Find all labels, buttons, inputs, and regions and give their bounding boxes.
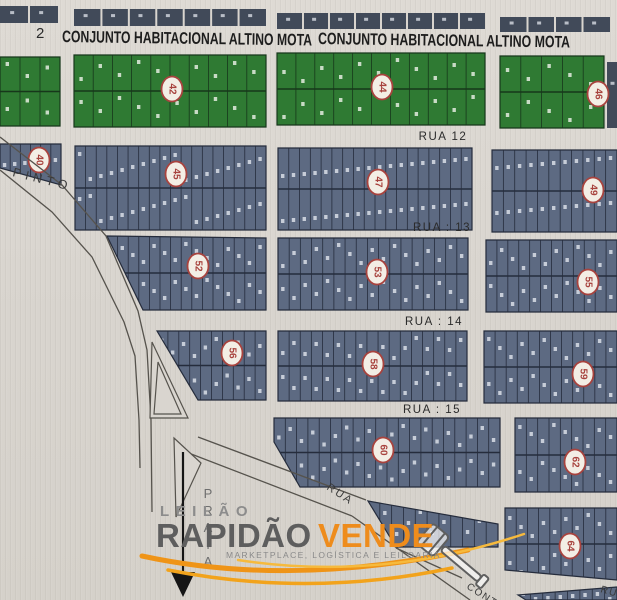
watermark-brand-vende: VENDE: [318, 517, 434, 554]
svg-text:47: 47: [373, 176, 384, 188]
svg-text:55: 55: [583, 276, 594, 288]
block-number-badge: 46: [588, 82, 609, 107]
block-number-badge: 56: [222, 341, 243, 366]
city-block-14: 59: [484, 331, 617, 403]
block-number-badge: 55: [578, 270, 599, 295]
city-block-6: 45: [75, 146, 266, 230]
plan-title-1: CONJUNTO HABITACIONAL ALTINO MOTA: [62, 28, 312, 49]
block-number-badge: 49: [583, 178, 604, 203]
city-block-9: 52: [107, 236, 266, 310]
city-block-13: 58: [278, 331, 467, 401]
city-block-11: 55: [486, 240, 617, 312]
lot-strip: [500, 17, 610, 32]
city-block-15: 60: [274, 418, 500, 487]
block-number-badge: 58: [363, 352, 384, 377]
city-block-7: 47: [278, 148, 472, 230]
street-label-rua-15: RUA : 15: [403, 404, 461, 416]
svg-text:44: 44: [377, 81, 388, 93]
plat-map: 42444640454749525355565859606264 2 CONJU…: [0, 0, 617, 600]
watermark: LEILÃO RAPIDÃO VENDE MARKETPLACE, LOGÍST…: [142, 502, 524, 594]
city-block-18: 64: [505, 508, 617, 580]
city-block-10: 53: [278, 238, 468, 310]
block-number-badge: 64: [560, 534, 581, 559]
street-label-rua-12: RUA 12: [419, 131, 468, 143]
svg-text:49: 49: [588, 184, 599, 196]
svg-text:59: 59: [578, 368, 589, 380]
plan-number: 2: [36, 25, 44, 42]
block-number-badge: 53: [367, 260, 388, 285]
block-number-badge: 44: [372, 75, 393, 100]
svg-text:42: 42: [167, 83, 178, 95]
road-island: [154, 362, 181, 414]
plat-map-scan: 42444640454749525355565859606264 2 CONJU…: [0, 0, 617, 600]
block-number-badge: 60: [373, 438, 394, 463]
svg-text:45: 45: [171, 168, 182, 180]
svg-text:52: 52: [193, 260, 204, 272]
lot-strip: [74, 9, 266, 26]
street-label-rua-13: RUA : 13: [413, 222, 471, 234]
lot-strip: [277, 13, 485, 29]
svg-text:53: 53: [372, 266, 383, 278]
block-number-badge: 45: [166, 162, 187, 187]
city-block-8: 49: [492, 150, 617, 232]
street-label-rua-14: RUA : 14: [405, 316, 463, 328]
svg-text:64: 64: [565, 540, 576, 552]
svg-text:46: 46: [593, 88, 604, 100]
watermark-subtitle: MARKETPLACE, LOGÍSTICA E LEILOARIA: [226, 550, 441, 560]
svg-text:62: 62: [570, 456, 581, 468]
lot-strip: [0, 6, 58, 23]
block-number-badge: 42: [162, 77, 183, 102]
city-block-3: 44: [277, 53, 485, 125]
svg-text:60: 60: [378, 444, 389, 456]
city-block-1: [0, 57, 60, 126]
block-number-badge: 47: [368, 170, 389, 195]
plan-title-2: CONJUNTO HABITACIONAL ALTINO MOTA: [318, 30, 570, 52]
svg-text:56: 56: [227, 347, 238, 359]
block-number-badge: 59: [573, 362, 594, 387]
block-number-badge: 62: [565, 450, 586, 475]
block-number-badge: 52: [188, 254, 209, 279]
city-block-4: 46: [500, 56, 609, 128]
city-block-16: 62: [515, 418, 617, 492]
city-block-2: 42: [74, 55, 266, 127]
watermark-brand-rapidao: RAPIDÃO: [156, 517, 312, 554]
svg-text:58: 58: [368, 358, 379, 370]
